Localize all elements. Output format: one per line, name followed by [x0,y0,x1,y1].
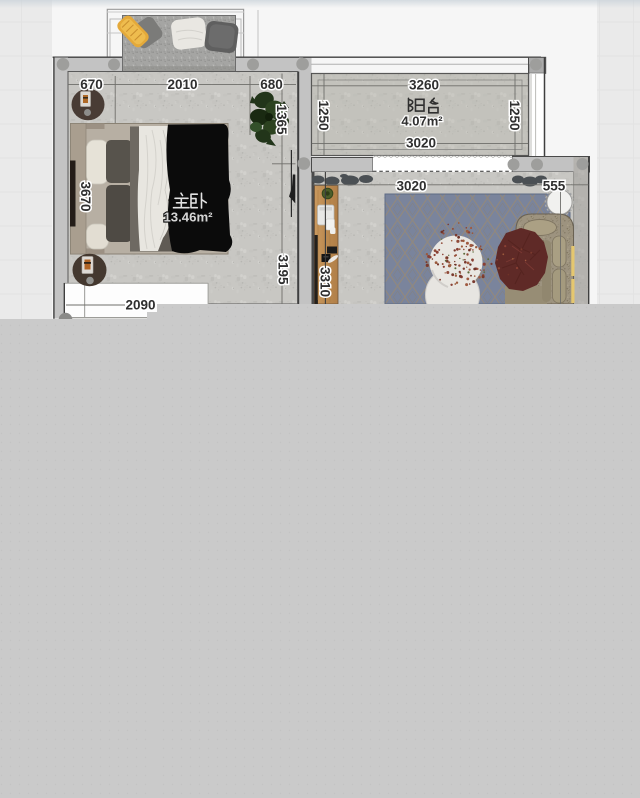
svg-text:13.46m²: 13.46m² [163,210,213,225]
svg-text:680: 680 [260,77,283,92]
svg-text:2010: 2010 [167,77,197,92]
svg-text:3670: 3670 [78,181,93,211]
svg-text:3020: 3020 [396,179,426,194]
svg-text:3310: 3310 [318,267,333,297]
svg-text:555: 555 [543,179,566,194]
svg-text:3020: 3020 [406,136,436,151]
svg-text:1250: 1250 [316,100,331,130]
svg-text:3195: 3195 [276,254,291,285]
svg-text:3260: 3260 [409,78,439,93]
svg-text:1250: 1250 [507,100,522,130]
svg-text:670: 670 [80,77,103,92]
svg-text:2090: 2090 [125,298,155,313]
svg-text:4.07m²: 4.07m² [401,114,443,129]
svg-text:1365: 1365 [274,104,289,135]
